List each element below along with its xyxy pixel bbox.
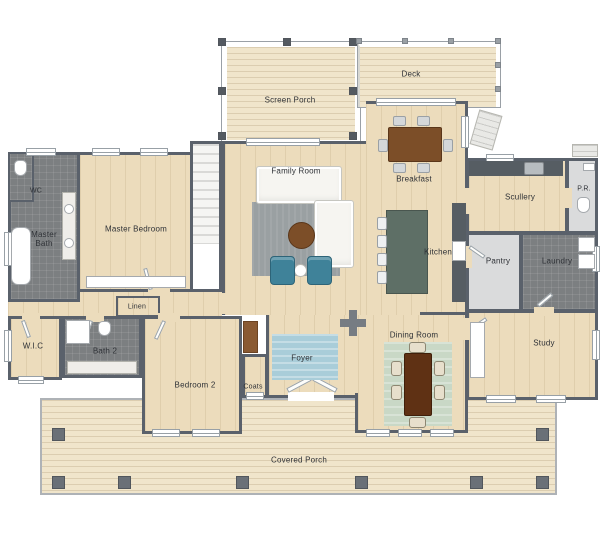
side-table (294, 264, 307, 277)
bar-stool (377, 271, 387, 284)
window (486, 395, 516, 403)
dining-chair (391, 361, 402, 376)
dining-chair (434, 361, 445, 376)
window (140, 148, 168, 156)
window (366, 429, 390, 437)
door-opening (219, 293, 228, 314)
sliding-door (246, 138, 320, 146)
armchair (307, 256, 332, 285)
window (92, 148, 120, 156)
staircase (190, 141, 222, 292)
breakfast-chair (378, 139, 388, 152)
toilet (14, 160, 27, 176)
screen-porch-floor (222, 42, 360, 145)
vanity (62, 192, 76, 260)
screen-porch-post (218, 132, 226, 140)
bar-stool (377, 235, 387, 248)
vanity-sink (64, 204, 74, 214)
wall-segment (420, 312, 468, 315)
room-label-linen: Linen (128, 304, 146, 311)
room-label-deck: Deck (401, 70, 420, 79)
armchair (270, 256, 295, 285)
screen-porch-post (218, 87, 226, 95)
scullery-counter (469, 161, 563, 176)
porch-post (355, 476, 368, 489)
dining-chair (391, 385, 402, 400)
window (152, 429, 180, 437)
window (192, 429, 220, 437)
dining-chair (409, 417, 426, 428)
screen-porch-post (283, 38, 291, 46)
master-closet (86, 276, 186, 288)
room-label-family-room: Family Room (271, 167, 320, 176)
washer (578, 237, 595, 252)
door-opening (534, 307, 554, 316)
room-label-foyer: Foyer (291, 354, 312, 363)
deck-rail-post (495, 38, 501, 44)
study-floor (466, 310, 598, 400)
dining-table (404, 353, 432, 416)
window (536, 395, 566, 403)
room-label-dining-room: Dining Room (390, 331, 438, 340)
dining-chair (434, 385, 445, 400)
window (592, 330, 600, 360)
room-label-covered-porch: Covered Porch (271, 456, 327, 465)
deck-rail-post (402, 38, 408, 44)
toilet (98, 321, 111, 336)
room-label-bedroom-2: Bedroom 2 (175, 381, 216, 390)
coffee-table (288, 222, 315, 249)
toilet (577, 197, 590, 213)
bar-stool (377, 217, 387, 230)
screen-porch-post (349, 87, 357, 95)
stair-treads (193, 144, 219, 244)
door-opening (563, 188, 572, 208)
porch-post (536, 428, 549, 441)
room-label-study: Study (533, 339, 554, 348)
room-label-master-bath: Master Bath (25, 230, 63, 248)
screen-porch-post (349, 132, 357, 140)
breakfast-table (388, 127, 442, 162)
study-closet (470, 322, 485, 378)
porch-post (236, 476, 249, 489)
wall-segment (355, 393, 358, 433)
room-label-master-bedroom: Master Bedroom (105, 225, 167, 234)
window (26, 148, 56, 156)
window (18, 376, 44, 384)
porch-post (118, 476, 131, 489)
screen-porch-post (218, 38, 226, 46)
range (452, 241, 466, 261)
dryer (578, 254, 595, 269)
breakfast-chair (443, 139, 453, 152)
pantry-floor (466, 232, 522, 312)
back-door-steps (572, 144, 598, 157)
kitchen-island (386, 210, 428, 294)
closet-door (246, 392, 264, 400)
vanity (67, 361, 137, 374)
dining-chair (409, 342, 426, 353)
window (398, 429, 422, 437)
room-label-bath-2: Bath 2 (93, 347, 117, 356)
deck-rail-post (448, 38, 454, 44)
porch-post (52, 428, 65, 441)
deck-steps (470, 109, 503, 150)
room-label-screen-porch: Screen Porch (265, 96, 316, 105)
front-door-opening (288, 392, 334, 401)
breakfast-chair (417, 163, 430, 173)
room-label-pantry: Pantry (486, 257, 510, 266)
porch-post (536, 476, 549, 489)
bar-stool (377, 253, 387, 266)
porch-post (52, 476, 65, 489)
room-label-scullery: Scullery (505, 193, 535, 202)
room-label-kitchen: Kitchen (424, 248, 452, 257)
deck-rail-post (495, 62, 501, 68)
room-label-wc: WC (30, 188, 42, 195)
window (4, 330, 12, 362)
room-label-breakfast: Breakfast (396, 175, 432, 184)
structural-column (340, 310, 366, 336)
room-label-laundry: Laundry (542, 257, 572, 266)
porch-post (470, 476, 483, 489)
floor-plan: Screen Porch Deck Family Room Breakfast … (0, 0, 600, 540)
room-label-powder-room: P.R. (577, 186, 591, 193)
breakfast-chair (393, 116, 406, 126)
deck-rail-post (495, 86, 501, 92)
window (430, 429, 454, 437)
shower (66, 320, 90, 344)
room-label-coats: Coats (243, 384, 262, 391)
scullery-sink (524, 162, 544, 175)
sliding-door (376, 98, 456, 106)
room-label-wic: W.I.C (23, 342, 44, 351)
entry-bench (243, 321, 258, 353)
master-bedroom-floor (77, 152, 193, 292)
breakfast-chair (393, 163, 406, 173)
pr-sink (583, 163, 595, 171)
deck-rail-post (356, 38, 362, 44)
vanity-sink (64, 238, 74, 248)
breakfast-chair (417, 116, 430, 126)
window (461, 116, 469, 148)
